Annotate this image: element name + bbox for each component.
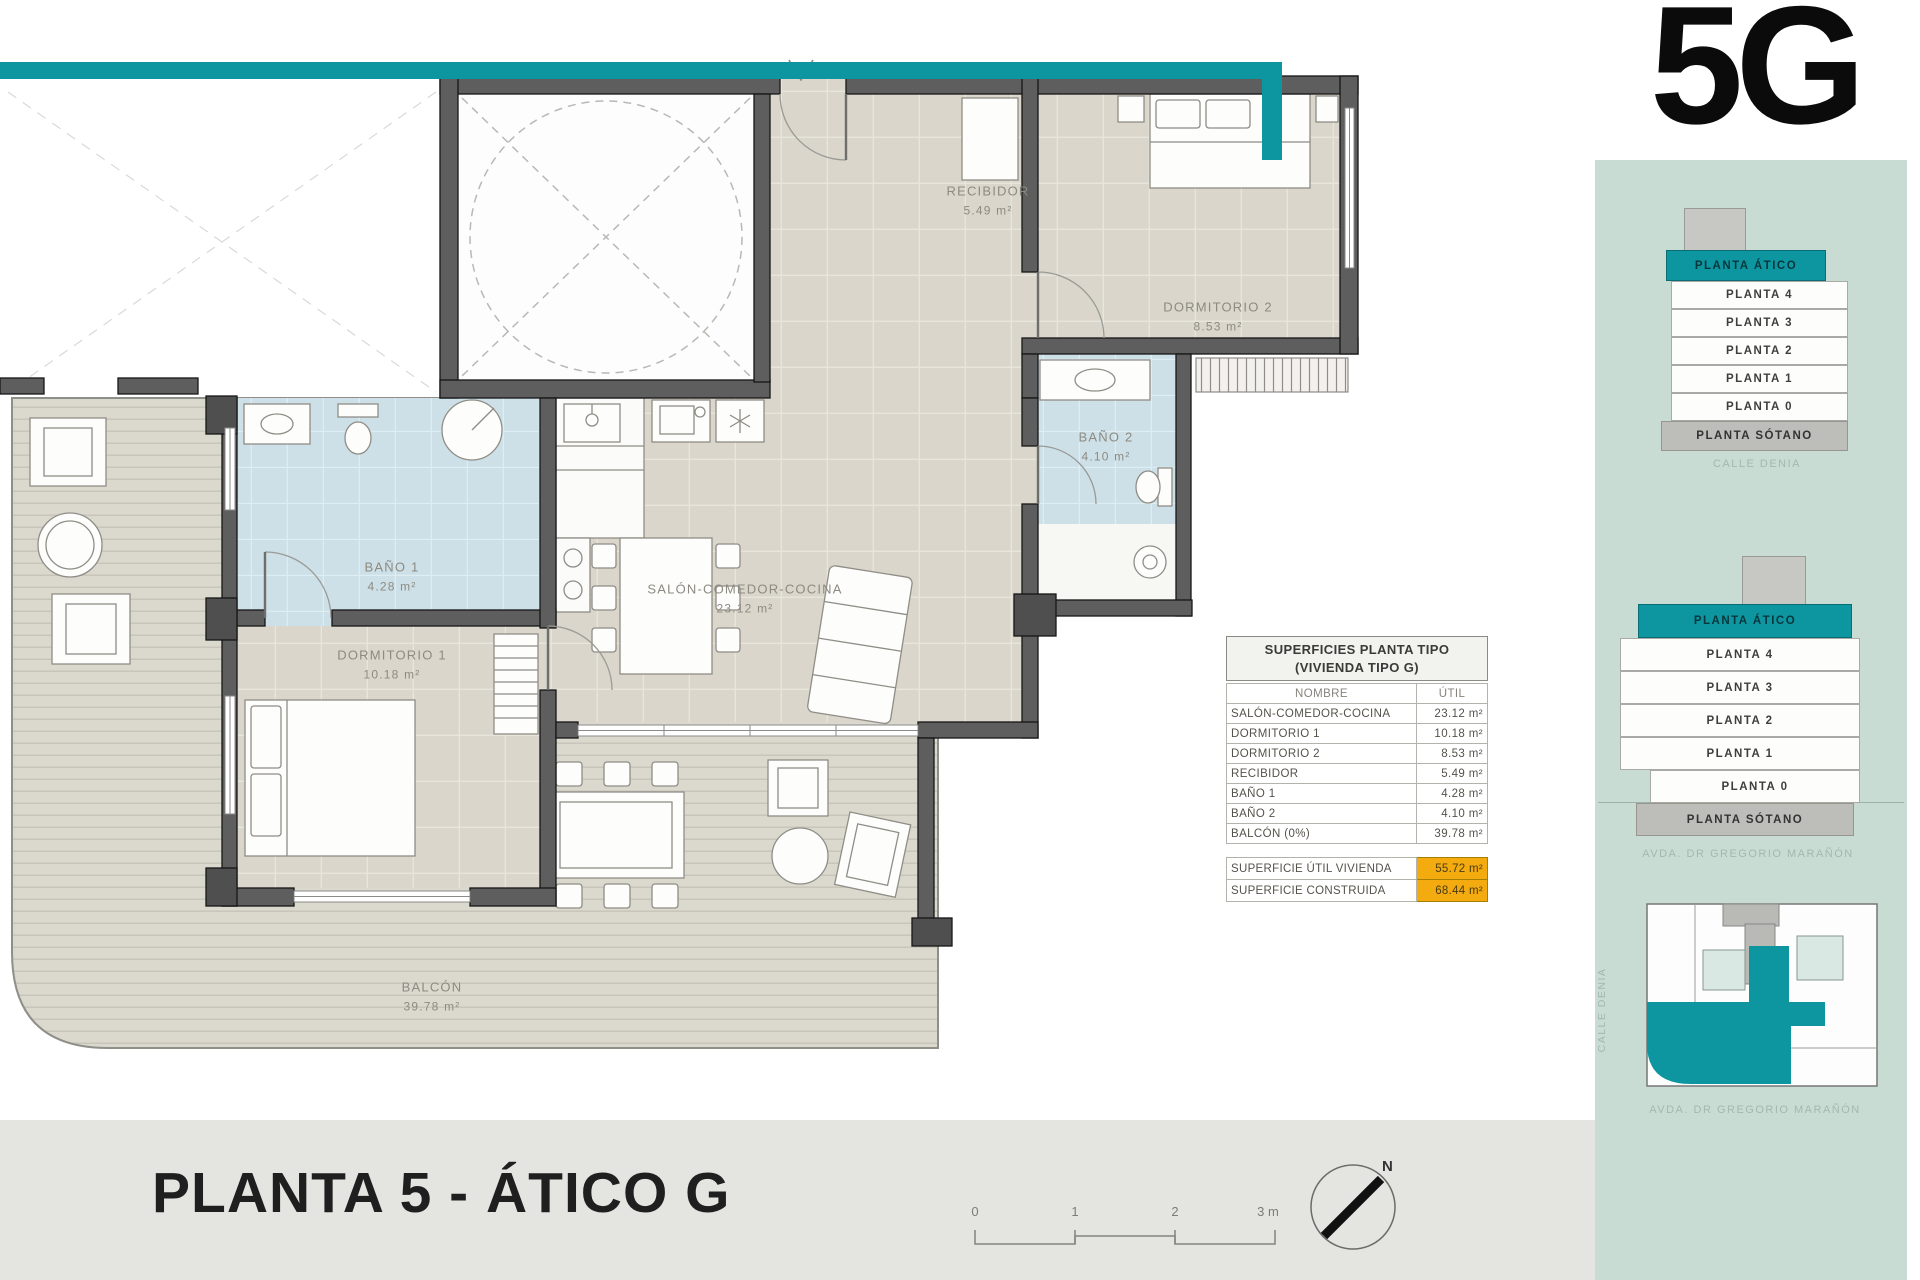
sheet-title: PLANTA 5 - ÁTICO G [152,1160,730,1226]
room-label-dormitorio1: DORMITORIO 1 10.18 m² [337,645,447,683]
hall-cabinet-icon [962,98,1018,180]
stack2-floor-sotano: PLANTA SÓTANO [1636,803,1854,836]
room-label-bano1: BAÑO 1 4.28 m² [365,557,420,595]
table-row: SALÓN-COMEDOR-COCINA 23.12 m² [1227,704,1488,724]
north-label: N [1382,1158,1393,1175]
stack1-floor-2: PLANTA 2 [1671,337,1848,365]
unit-code: 5G [1598,0,1910,161]
site-plan [1605,898,1905,1098]
pillars [206,396,1056,946]
furniture [30,94,1338,908]
stack2-street-label: AVDA. DR GREGORIO MARAÑÓN [1618,848,1878,860]
stack2-roof [1742,556,1806,606]
stair-core-icon [462,98,750,376]
table-row: DORMITORIO 1 10.18 m² [1227,724,1488,744]
stack1-floor-sotano: PLANTA SÓTANO [1661,421,1848,451]
room-label-bano2: BAÑO 2 4.10 m² [1079,427,1134,465]
stack1-floor-1: PLANTA 1 [1671,365,1848,393]
table-row: RECIBIDOR 5.49 m² [1227,764,1488,784]
stack2-floor-2: PLANTA 2 [1620,704,1860,737]
walls [0,76,1358,944]
teal-header-bar [0,62,1282,79]
table-row: BAÑO 2 4.10 m² [1227,804,1488,824]
stack1-roof [1684,208,1746,252]
scale-label-1: 1 [1071,1204,1078,1219]
plan-sheet: 5G [0,0,1920,1280]
terrace-deck [12,398,938,1048]
bed-double-icon [1118,94,1338,188]
fridge-snowflake-icon [730,409,750,433]
table-header-row: NOMBRE ÚTIL [1227,684,1488,704]
stack2-floor-1: PLANTA 1 [1620,737,1860,770]
stack2-floor-0: PLANTA 0 [1650,770,1860,803]
stack1-floor-0: PLANTA 0 [1671,393,1848,421]
stack2-floor-atico: PLANTA ÁTICO [1638,604,1852,638]
stack1-floor-3: PLANTA 3 [1671,309,1848,337]
areas-table: SUPERFICIES PLANTA TIPO (VIVIENDA TIPO G… [1226,636,1488,902]
siteplan-street-bottom-label: AVDA. DR GREGORIO MARAÑÓN [1620,1104,1890,1116]
terrace-furniture [30,418,911,908]
teal-header-bar-stub [1262,62,1282,160]
summary-row-util: SUPERFICIE ÚTIL VIVIENDA 55.72 m² [1227,858,1488,880]
bathroom2-fixtures-icon [1040,360,1172,578]
bed-double-icon [245,700,415,856]
bathroom1-fixtures-icon [244,400,502,460]
scale-label-2: 2 [1171,1204,1178,1219]
windows [225,108,1354,902]
exterior-dashed-lines [8,92,436,392]
stack1-floor-4: PLANTA 4 [1671,281,1848,309]
scale-label-3: 3 m [1257,1204,1279,1219]
room-label-recibidor: RECIBIDOR 5.49 m² [946,181,1029,219]
room-label-salon: SALÓN-COMEDOR-COCINA 23.12 m² [647,579,842,617]
siteplan-street-left-label: CALLE DENIA [1596,930,1610,1090]
summary-row-construida: SUPERFICIE CONSTRUIDA 68.44 m² [1227,880,1488,902]
wardrobe-icon [494,634,538,734]
stack1-street-label: CALLE DENIA [1657,458,1857,470]
room-label-dormitorio2: DORMITORIO 2 8.53 m² [1163,297,1273,335]
table-row: BALCÓN (0%) 39.78 m² [1227,824,1488,844]
exterior-grille-icon [1196,358,1348,392]
stack1-floor-atico: PLANTA ÁTICO [1666,250,1826,281]
areas-table-title: SUPERFICIES PLANTA TIPO (VIVIENDA TIPO G… [1226,636,1488,681]
table-row: DORMITORIO 2 8.53 m² [1227,744,1488,764]
table-row: BAÑO 1 4.28 m² [1227,784,1488,804]
room-floors [237,76,1340,888]
scale-label-0: 0 [971,1204,978,1219]
stack2-floor-3: PLANTA 3 [1620,671,1860,704]
room-label-balcon: BALCÓN 39.78 m² [402,977,463,1015]
stack2-floor-4: PLANTA 4 [1620,638,1860,671]
